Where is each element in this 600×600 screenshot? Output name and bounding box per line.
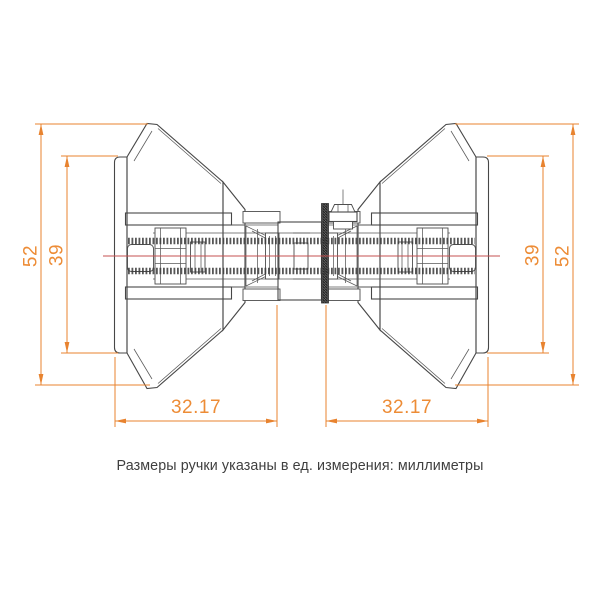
dimension-bottom-right: 32.17 [326,305,488,427]
dimension-label: 52 [553,245,574,267]
dimension-label: 32.17 [382,397,432,418]
dimension-label: 39 [523,244,544,266]
dimension-right-inner: 39 [487,156,549,353]
canvas: 52 39 39 52 32.17 [0,0,600,600]
gasket-strip [322,204,329,304]
technical-drawing: 52 39 39 52 32.17 [0,0,600,600]
dimension-bottom-left: 32.17 [115,305,277,427]
dimension-label: 32.17 [171,397,221,418]
dimension-label: 52 [21,245,42,267]
dimension-left-inner: 39 [47,156,119,353]
dimensions: 52 39 39 52 32.17 [21,124,580,427]
dimension-label: 39 [47,244,68,266]
set-screw [329,190,357,230]
caption: Размеры ручки указаны в ед. измерения: м… [117,458,484,474]
knob-drawing [103,124,500,389]
